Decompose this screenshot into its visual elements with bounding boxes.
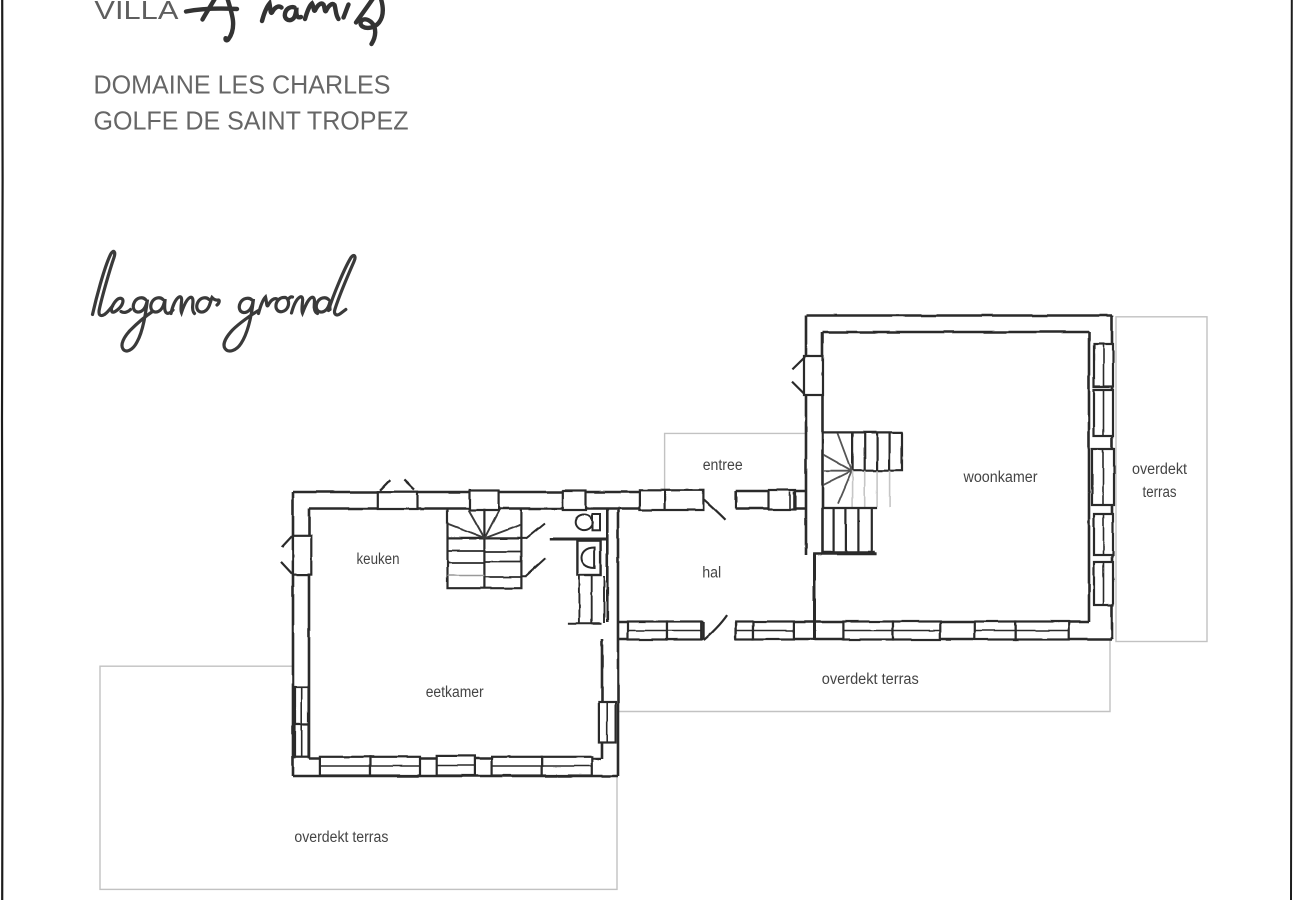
svg-text:keuken: keuken <box>357 551 400 568</box>
svg-text:overdekt terras: overdekt terras <box>822 671 919 688</box>
svg-text:DOMAINE LES CHARLES: DOMAINE LES CHARLES <box>94 70 391 100</box>
svg-text:overdekt terras: overdekt terras <box>294 829 388 846</box>
svg-text:entree: entree <box>703 457 743 474</box>
svg-text:overdekt: overdekt <box>1132 461 1188 478</box>
svg-text:woonkamer: woonkamer <box>963 469 1038 486</box>
svg-text:terras: terras <box>1143 484 1177 501</box>
svg-text:hal: hal <box>702 565 721 582</box>
svg-text:GOLFE DE SAINT TROPEZ: GOLFE DE SAINT TROPEZ <box>94 106 409 136</box>
svg-text:eetkamer: eetkamer <box>426 684 484 701</box>
svg-text:VILLA: VILLA <box>94 0 179 25</box>
